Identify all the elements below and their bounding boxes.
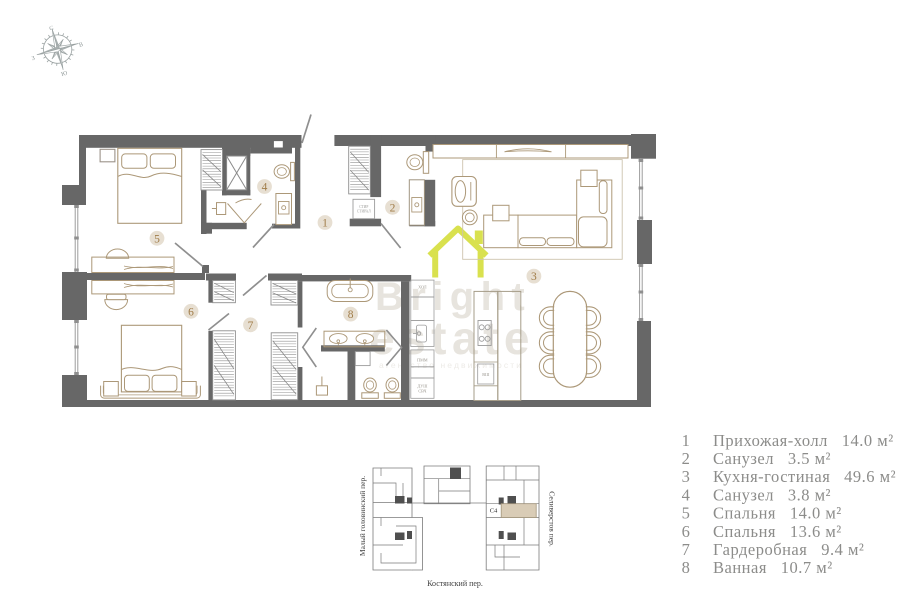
svg-text:ВШ: ВШ [482, 372, 490, 377]
svg-text:5: 5 [682, 504, 691, 523]
svg-text:5: 5 [154, 233, 160, 245]
svg-text:С4: С4 [490, 508, 498, 515]
svg-text:2: 2 [390, 202, 396, 214]
svg-text:СВЧ: СВЧ [418, 389, 426, 394]
svg-text:Гардеробная 9.4 м²: Гардеробная 9.4 м² [713, 540, 864, 559]
svg-text:1: 1 [682, 431, 691, 450]
svg-text:Прихожая-холл 14.0 м²: Прихожая-холл 14.0 м² [713, 431, 894, 450]
svg-text:Ванная 10.7 м²: Ванная 10.7 м² [713, 558, 833, 577]
svg-text:7: 7 [248, 320, 254, 332]
svg-text:4: 4 [262, 182, 268, 194]
svg-text:СТИРАЛ: СТИРАЛ [357, 209, 371, 213]
svg-text:8: 8 [682, 558, 691, 577]
svg-text:6: 6 [682, 522, 691, 541]
svg-text:Санузел 3.5 м²: Санузел 3.5 м² [713, 449, 831, 468]
svg-text:7: 7 [682, 540, 691, 559]
svg-text:Спальня 14.0 м²: Спальня 14.0 м² [713, 504, 842, 523]
svg-text:2: 2 [682, 449, 691, 468]
svg-text:ХОЛ: ХОЛ [418, 284, 427, 289]
svg-text:Кухня-гостиная 49.6 м²: Кухня-гостиная 49.6 м² [713, 467, 896, 486]
svg-text:Селиверстов пер.: Селиверстов пер. [548, 491, 557, 547]
svg-text:СТИР: СТИР [359, 205, 368, 209]
svg-text:Костянский пер.: Костянский пер. [427, 579, 483, 588]
svg-text:Санузел 3.8 м²: Санузел 3.8 м² [713, 485, 831, 504]
svg-text:Спальня 13.6 м²: Спальня 13.6 м² [713, 522, 842, 541]
svg-text:8: 8 [348, 309, 354, 321]
svg-text:3: 3 [531, 271, 537, 283]
svg-text:ПММ: ПММ [417, 358, 428, 363]
svg-text:6: 6 [188, 306, 194, 318]
svg-text:Малый головинский пер.: Малый головинский пер. [358, 476, 367, 556]
svg-text:3: 3 [682, 467, 691, 486]
svg-text:1: 1 [322, 218, 328, 230]
svg-text:4: 4 [682, 485, 691, 504]
svg-text:агентство недвижимости: агентство недвижимости [379, 360, 523, 370]
